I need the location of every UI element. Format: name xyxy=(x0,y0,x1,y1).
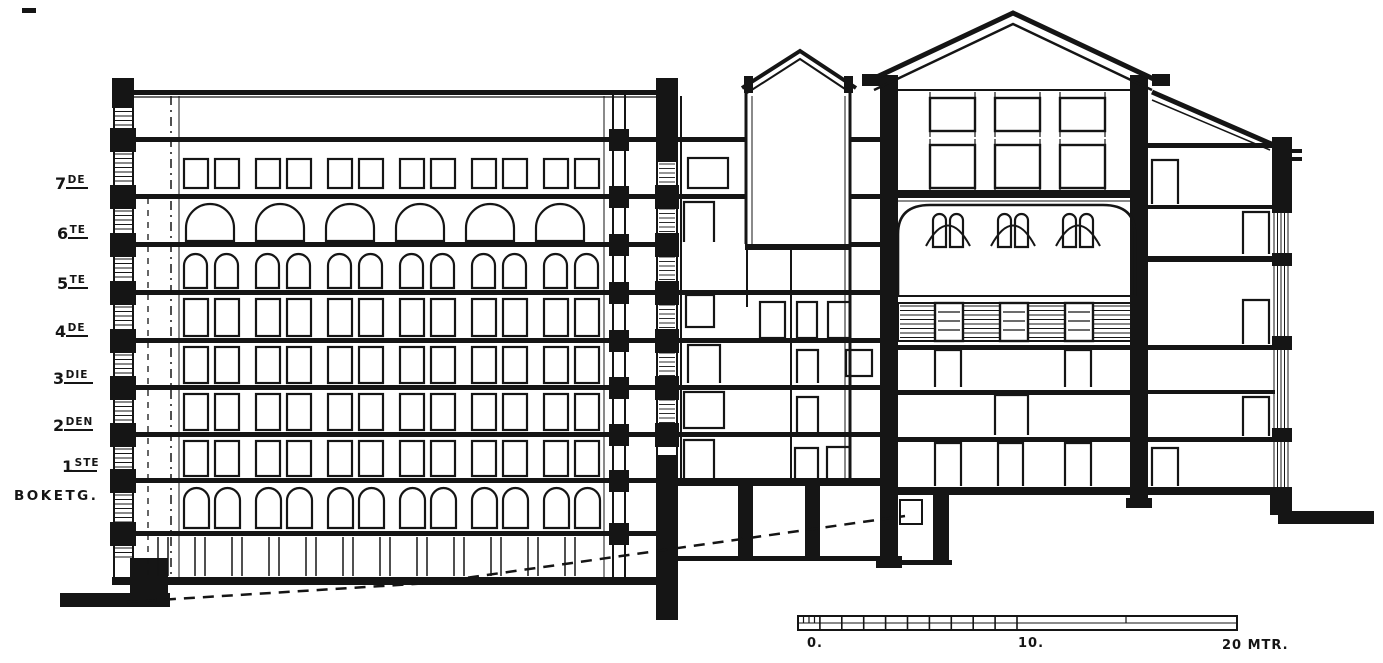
window xyxy=(184,347,208,383)
wall-bracket xyxy=(1290,149,1302,153)
square-window xyxy=(256,159,280,188)
window xyxy=(359,441,383,476)
floor-label-3die: 3DIE xyxy=(53,369,88,388)
window xyxy=(184,441,208,476)
window xyxy=(215,441,239,476)
window xyxy=(184,299,208,336)
louver-window xyxy=(1000,303,1028,341)
floor-label-2den: 2DEN xyxy=(53,416,93,435)
window xyxy=(328,299,352,336)
pier-block xyxy=(110,423,136,447)
floor-label-6te: 6TE xyxy=(57,224,86,243)
cellar-floor xyxy=(660,556,882,561)
door-opening xyxy=(935,350,961,387)
window xyxy=(544,347,568,383)
floor-label-1ste: 1STE xyxy=(62,457,100,476)
floor-slab xyxy=(133,194,657,199)
window xyxy=(503,441,527,476)
window xyxy=(287,394,311,430)
window xyxy=(472,347,496,383)
window xyxy=(215,347,239,383)
tower-eave-block xyxy=(744,76,753,93)
loggia-arch-window xyxy=(998,214,1011,247)
window xyxy=(287,299,311,336)
scale-label-20: 20 MTR. xyxy=(1222,638,1289,653)
square-window xyxy=(544,159,568,188)
window xyxy=(328,347,352,383)
large-arch-window xyxy=(326,204,374,241)
floor-slab xyxy=(133,290,657,295)
door-opening xyxy=(827,447,850,478)
door-opening xyxy=(684,202,714,242)
window xyxy=(503,347,527,383)
wall-black xyxy=(1272,428,1292,442)
floor-slab xyxy=(133,137,657,142)
wall-block xyxy=(609,282,629,304)
door-opening xyxy=(1065,350,1091,387)
square-window xyxy=(215,159,239,188)
left-block xyxy=(22,8,657,607)
square-window xyxy=(431,159,455,188)
wall-black xyxy=(1272,336,1292,350)
pier-block xyxy=(655,329,679,353)
window xyxy=(544,394,568,430)
door-opening xyxy=(1152,160,1178,204)
cellar-pier xyxy=(738,486,753,560)
door-opening xyxy=(935,443,961,486)
floor-slab xyxy=(133,242,657,247)
door-opening xyxy=(1243,300,1269,344)
pier-block xyxy=(110,128,136,152)
cellar-floor xyxy=(876,560,952,565)
tower-roof-outer xyxy=(742,51,856,88)
wall-block xyxy=(609,523,629,545)
door-opening xyxy=(995,395,1028,435)
cellar-window xyxy=(900,500,922,524)
arched-window xyxy=(215,488,240,528)
door-opening xyxy=(688,345,720,383)
square-window xyxy=(472,159,496,188)
floor-slab-heavy xyxy=(677,478,880,486)
pier-block xyxy=(110,376,136,400)
square-window xyxy=(575,159,599,188)
eave-block xyxy=(1152,74,1170,86)
floor-slab xyxy=(133,385,657,390)
window xyxy=(359,299,383,336)
window xyxy=(215,299,239,336)
window xyxy=(472,394,496,430)
arched-window xyxy=(256,488,281,528)
window xyxy=(359,394,383,430)
window xyxy=(575,347,599,383)
arched-window xyxy=(431,488,456,528)
arched-window xyxy=(359,488,384,528)
pier-black xyxy=(657,78,677,162)
pier-foot xyxy=(1126,498,1152,508)
pier-block xyxy=(655,233,679,257)
pier-block xyxy=(655,423,679,447)
window xyxy=(256,347,280,383)
square-window xyxy=(930,145,975,188)
wall-block xyxy=(609,234,629,256)
window xyxy=(359,347,383,383)
window xyxy=(400,299,424,336)
floor-slab xyxy=(133,338,657,343)
window xyxy=(575,394,599,430)
large-arch-window xyxy=(186,204,234,241)
floor-label-boketg: BOKETG. xyxy=(14,488,98,504)
square-window xyxy=(995,98,1040,131)
window xyxy=(688,158,728,188)
door-opening xyxy=(1065,443,1091,486)
square-window xyxy=(930,98,975,131)
door-opening xyxy=(998,443,1023,486)
floor-slab xyxy=(677,137,745,142)
window xyxy=(184,394,208,430)
loggia-arch-window xyxy=(1015,214,1028,247)
square-window xyxy=(328,159,352,188)
floor-slab xyxy=(850,194,880,199)
square-window xyxy=(1060,145,1105,188)
stair-tower xyxy=(742,51,872,482)
arched-window xyxy=(287,254,310,288)
floor-slab xyxy=(133,90,657,95)
window xyxy=(828,302,850,338)
wall-black xyxy=(1272,253,1292,266)
window xyxy=(503,394,527,430)
pier-block xyxy=(655,376,679,400)
arched-window xyxy=(575,254,598,288)
pier-block xyxy=(655,185,679,209)
wall-block xyxy=(609,129,629,151)
door-opening xyxy=(1243,397,1269,436)
arched-window xyxy=(544,488,569,528)
window xyxy=(503,299,527,336)
large-arch-window xyxy=(396,204,444,241)
floor-slab xyxy=(898,437,1130,442)
floor-slab xyxy=(1148,143,1275,148)
arched-window xyxy=(359,254,382,288)
window xyxy=(400,394,424,430)
shed-roof-inner xyxy=(1152,100,1270,150)
floor-slab xyxy=(850,137,880,142)
floor-label-4de: 4DE xyxy=(55,322,86,341)
window xyxy=(544,299,568,336)
window xyxy=(400,347,424,383)
pier-block xyxy=(110,469,136,493)
floor-slab xyxy=(1148,256,1275,262)
louver-window xyxy=(935,303,963,341)
window xyxy=(431,441,455,476)
pier-block xyxy=(110,329,136,353)
sheet-mark xyxy=(22,8,36,13)
large-arch-window xyxy=(256,204,304,241)
floor-slab xyxy=(1148,205,1275,209)
door-opening xyxy=(795,448,818,478)
wall-black xyxy=(1272,137,1292,213)
arched-window xyxy=(328,488,353,528)
drawing-sheet: 7DE 6TE 5TE 4DE 3DIE 2DEN 1STE BOKETG. 0… xyxy=(0,0,1383,663)
window xyxy=(760,302,785,338)
window xyxy=(287,347,311,383)
floor-labels: 7DE 6TE 5TE 4DE 3DIE 2DEN 1STE BOKETG. xyxy=(14,174,100,504)
arched-window xyxy=(503,254,526,288)
eave-block xyxy=(862,74,880,86)
window xyxy=(256,394,280,430)
window xyxy=(575,299,599,336)
pier-block xyxy=(655,281,679,305)
arched-window xyxy=(544,254,567,288)
wall-block xyxy=(609,470,629,492)
window xyxy=(797,302,817,338)
wall-black xyxy=(1270,487,1292,515)
window xyxy=(575,441,599,476)
door-opening xyxy=(797,350,818,383)
wall-bracket xyxy=(1290,157,1302,161)
square-window xyxy=(184,159,208,188)
cellar-pier xyxy=(805,486,820,560)
arched-window xyxy=(503,488,528,528)
scale-bar-graphic xyxy=(798,616,1237,630)
large-arch-window xyxy=(536,204,584,241)
square-window xyxy=(359,159,383,188)
window xyxy=(431,394,455,430)
floor-label-7de: 7DE xyxy=(55,174,86,193)
pier-block xyxy=(110,281,136,305)
loggia-arch-window xyxy=(1063,214,1076,247)
wall-block xyxy=(609,186,629,208)
arched-window xyxy=(431,254,454,288)
door-opening xyxy=(797,397,818,432)
tower-floor-slab xyxy=(745,244,850,250)
door-opening xyxy=(1152,448,1178,486)
pier-block xyxy=(110,522,136,546)
floor-slab xyxy=(133,531,657,536)
shed-roof xyxy=(1152,92,1276,146)
window xyxy=(472,441,496,476)
floor-slab xyxy=(850,242,880,247)
scale-label-0: 0. xyxy=(807,636,823,651)
pier-block xyxy=(110,233,136,257)
window xyxy=(215,394,239,430)
window xyxy=(686,295,714,327)
pier-black xyxy=(1130,75,1148,505)
wall-block xyxy=(609,330,629,352)
window xyxy=(328,394,352,430)
door-opening xyxy=(1243,212,1269,254)
floor-slab xyxy=(1148,390,1275,394)
loggia-arch-window xyxy=(1080,214,1093,247)
gable-block xyxy=(862,13,1278,568)
window xyxy=(431,299,455,336)
floor-slab xyxy=(1148,437,1275,442)
wall-block xyxy=(609,377,629,399)
arched-window xyxy=(472,254,495,288)
floor-label-5te: 5TE xyxy=(57,274,86,293)
arched-window xyxy=(575,488,600,528)
arched-window xyxy=(287,488,312,528)
square-window xyxy=(503,159,527,188)
arched-window xyxy=(215,254,238,288)
window xyxy=(256,441,280,476)
cellar-pier xyxy=(933,492,949,563)
arched-window xyxy=(184,488,209,528)
arched-window xyxy=(328,254,351,288)
right-wing xyxy=(1148,92,1374,524)
floor-slab xyxy=(133,478,657,483)
arched-window xyxy=(400,254,423,288)
building-section-drawing: 7DE 6TE 5TE 4DE 3DIE 2DEN 1STE BOKETG. 0… xyxy=(0,0,1383,663)
window xyxy=(256,299,280,336)
arched-window xyxy=(400,488,425,528)
louver-window xyxy=(1065,303,1093,341)
pier-top-block xyxy=(112,78,134,108)
floor-slab xyxy=(677,194,745,199)
loggia-arch-window xyxy=(950,214,963,247)
square-window xyxy=(1060,98,1105,131)
floor-slab xyxy=(898,345,1130,350)
window xyxy=(431,347,455,383)
window xyxy=(684,392,724,428)
door-opening xyxy=(684,440,714,478)
window xyxy=(287,441,311,476)
scale-bar-labels: 0. 10. 20 MTR. xyxy=(807,636,1289,653)
floor-slab xyxy=(133,432,657,437)
loggia-arch-window xyxy=(933,214,946,247)
floor-slab xyxy=(1148,345,1275,350)
scale-label-10: 10. xyxy=(1018,636,1044,651)
pier-black xyxy=(657,455,677,620)
square-window xyxy=(995,145,1040,188)
window xyxy=(328,441,352,476)
arched-window xyxy=(256,254,279,288)
tower-eave-block xyxy=(844,76,853,93)
pier-block xyxy=(110,185,136,209)
footing-right xyxy=(1278,511,1374,524)
base-slab xyxy=(112,577,657,585)
arched-window xyxy=(472,488,497,528)
wall-block xyxy=(609,424,629,446)
window xyxy=(544,441,568,476)
arched-window xyxy=(184,254,207,288)
large-arch-window xyxy=(466,204,514,241)
square-window xyxy=(400,159,424,188)
window xyxy=(400,441,424,476)
balcony-slab xyxy=(885,190,1135,198)
square-window xyxy=(287,159,311,188)
window xyxy=(472,299,496,336)
